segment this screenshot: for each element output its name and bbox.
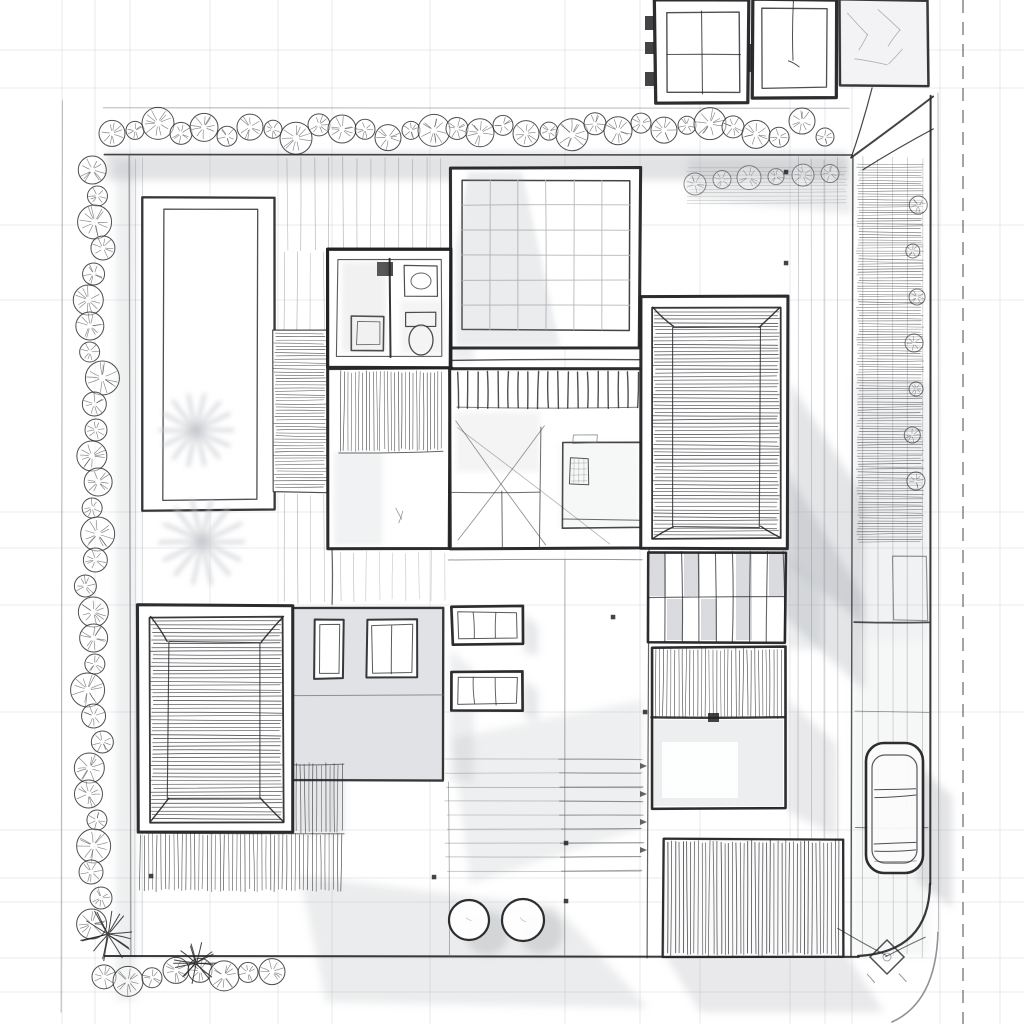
- tree-icon: [126, 121, 144, 139]
- tree-icon: [92, 965, 116, 989]
- tree-icon: [142, 968, 162, 988]
- planter-bench: [451, 605, 524, 645]
- tree-icon: [77, 829, 111, 863]
- tree-icon: [909, 196, 927, 214]
- tree-icon: [493, 115, 513, 135]
- tree-icon: [85, 654, 105, 674]
- tree-icon: [91, 236, 115, 260]
- tree-icon: [737, 166, 761, 190]
- tree-icon: [237, 114, 263, 140]
- hipped-roof-left: [137, 604, 293, 832]
- tree-icon: [446, 117, 468, 139]
- parked-car: [866, 743, 923, 873]
- neighbour-b3: [839, 0, 929, 86]
- site-plan-drawing: [0, 0, 1024, 1024]
- left-room-wash: [334, 452, 382, 545]
- tree-icon: [259, 959, 285, 985]
- tree-icon: [816, 128, 834, 146]
- tree-icon: [71, 673, 105, 707]
- tree-icon: [308, 114, 330, 136]
- tree-icon: [355, 119, 375, 139]
- planter-bench: [451, 671, 523, 711]
- tree-icon: [909, 382, 923, 396]
- bed-wash: [560, 443, 638, 528]
- tree-icon: [513, 121, 539, 147]
- tree-icon: [540, 122, 558, 140]
- tree-icon: [209, 961, 239, 991]
- tree-icon: [694, 108, 726, 140]
- bathroom-wash-left: [342, 262, 386, 352]
- tree-icon: [85, 419, 107, 441]
- tree-icon: [82, 392, 106, 416]
- tree-icon: [280, 122, 312, 154]
- tree-icon: [375, 125, 401, 151]
- round-table: [449, 900, 489, 940]
- tree-icon: [904, 427, 920, 443]
- pergola-room: [651, 646, 786, 809]
- tree-icon: [722, 116, 744, 138]
- tree-icon: [678, 116, 696, 134]
- tree-icon: [113, 966, 143, 996]
- hipped-roof-right: [641, 295, 789, 548]
- tree-icon: [74, 780, 102, 808]
- bathroom-wash-right: [400, 300, 444, 354]
- tree-icon: [264, 120, 282, 138]
- tree-icon: [78, 205, 112, 239]
- tree-icon: [87, 186, 107, 206]
- tree-icon: [907, 472, 925, 490]
- tree-icon: [909, 289, 925, 305]
- tree-icon: [82, 704, 106, 728]
- tree-icon: [684, 173, 706, 195]
- tree-icon: [83, 548, 107, 572]
- tree-icon: [466, 119, 494, 147]
- tree-icon: [418, 114, 450, 146]
- tree-icon: [74, 753, 104, 783]
- tree-icon: [76, 312, 104, 340]
- bedroom-wing: [292, 607, 445, 780]
- tree-icon: [402, 121, 420, 139]
- tree-icon: [238, 962, 258, 982]
- tree-icon: [79, 860, 103, 884]
- hedge-left-shadow: [116, 160, 136, 1000]
- tree-icon: [90, 887, 112, 909]
- tree-icon: [584, 113, 606, 135]
- garden-mat: [273, 330, 328, 493]
- living-wash: [456, 412, 540, 472]
- tree-icon: [906, 244, 920, 258]
- tree-icon: [769, 127, 789, 147]
- tree-icon: [91, 731, 113, 753]
- tree-icon: [651, 117, 677, 143]
- tree-icon: [80, 342, 100, 362]
- tree-icon: [83, 263, 105, 285]
- tree-icon: [188, 958, 212, 982]
- tree-icon: [82, 498, 102, 518]
- patio-mat: [663, 838, 845, 957]
- tree-icon: [78, 597, 108, 627]
- tree-icon: [99, 120, 125, 146]
- patio-shadow: [664, 954, 884, 1012]
- tree-icon: [821, 165, 839, 183]
- tree-icon: [87, 810, 107, 830]
- tree-icon: [190, 113, 218, 141]
- tree-icon: [85, 361, 119, 395]
- tree-icon: [328, 115, 356, 143]
- tree-icon: [905, 334, 923, 352]
- tree-icon: [142, 107, 174, 139]
- door-knob-mark: [708, 713, 719, 722]
- storage-cell-block: [648, 551, 787, 643]
- round-table: [502, 899, 544, 941]
- tree-icon: [631, 113, 651, 133]
- tree-icon: [556, 119, 588, 151]
- tree-icon: [80, 624, 108, 652]
- neighbour-b2: [752, 0, 837, 98]
- tree-icon: [604, 117, 632, 145]
- tree-icon: [77, 441, 107, 471]
- pool-lawn: [142, 197, 275, 511]
- tree-icon: [742, 120, 770, 148]
- tree-icon: [768, 169, 784, 185]
- tree-icon: [78, 156, 106, 184]
- tree-icon: [217, 126, 237, 146]
- tree-icon: [74, 575, 96, 597]
- tree-icon: [81, 517, 115, 551]
- tree-icon: [789, 108, 815, 134]
- tree-icon: [713, 171, 731, 189]
- tree-icon: [792, 164, 814, 186]
- tree-icon: [84, 468, 112, 496]
- site-plan-canvas: [0, 0, 1024, 1024]
- tree-icon: [170, 122, 192, 144]
- tree-icon: [73, 285, 103, 315]
